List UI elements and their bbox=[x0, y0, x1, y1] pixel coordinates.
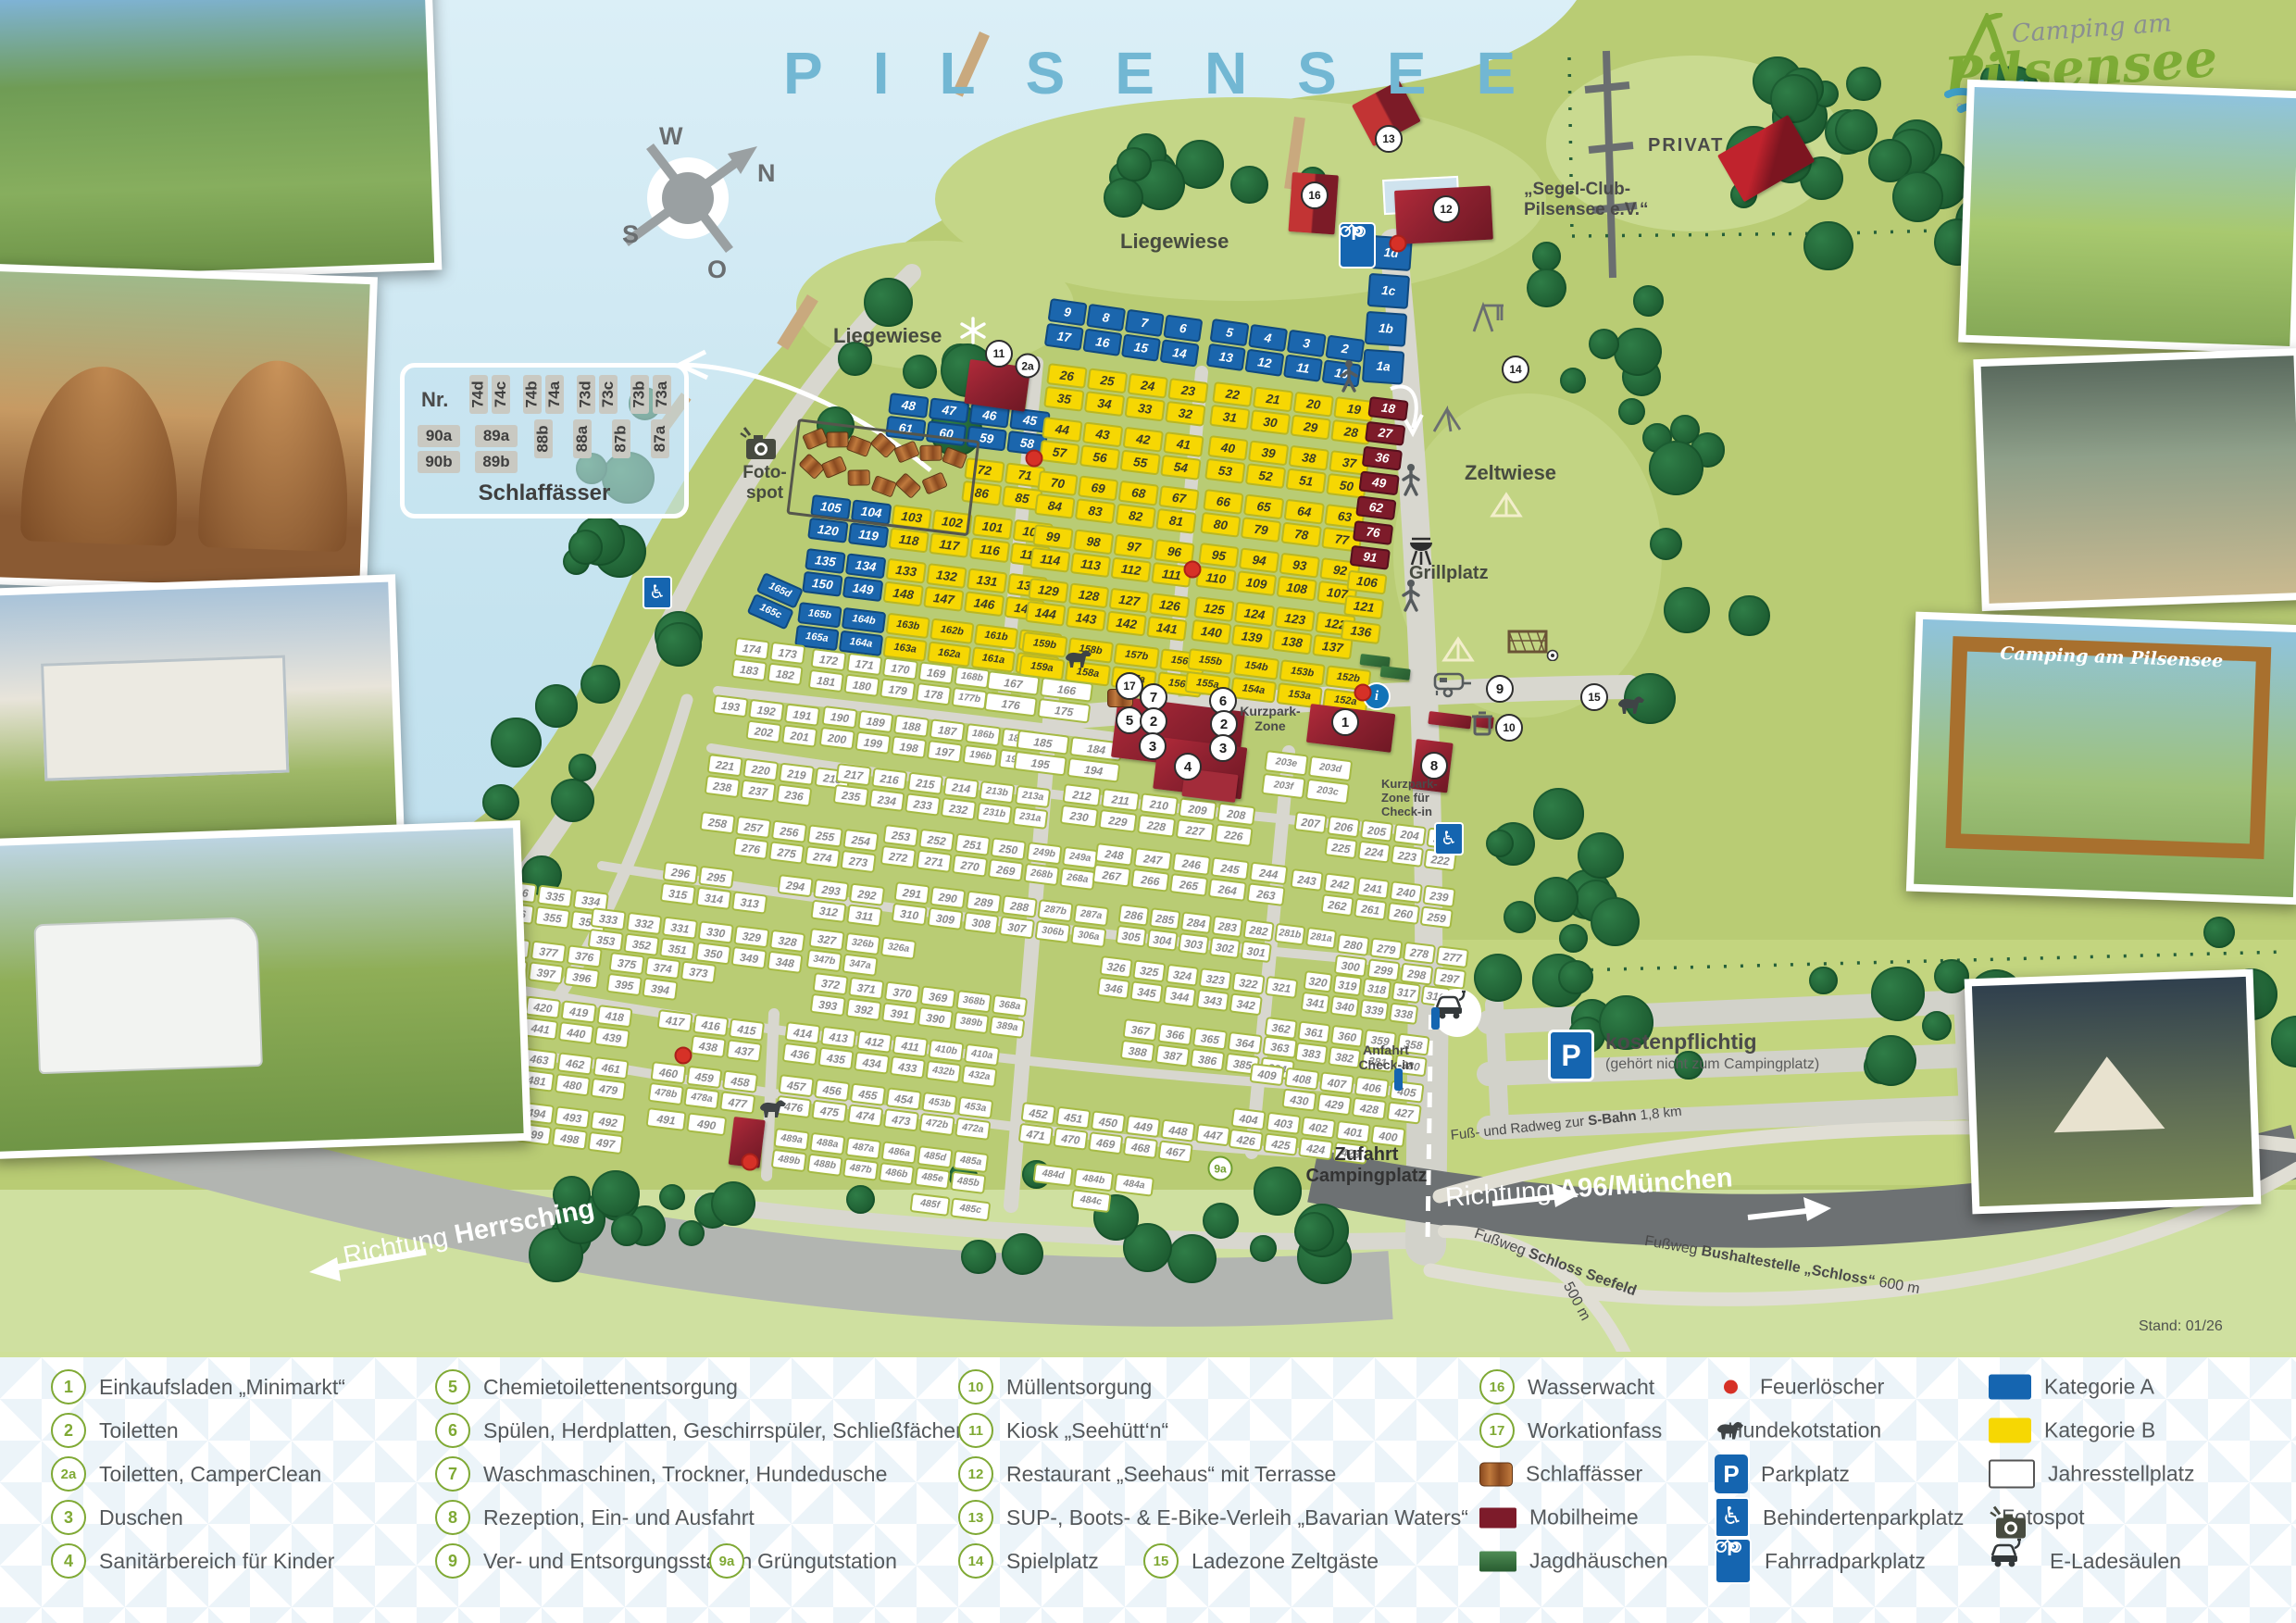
legend-item: E-Ladesäulen bbox=[1989, 1537, 2181, 1585]
plot-cell: 457 bbox=[778, 1074, 814, 1097]
map-marker-12: 12 bbox=[1432, 195, 1460, 223]
plot-cell: 306b bbox=[1034, 920, 1070, 943]
plot-cell: 473 bbox=[883, 1108, 919, 1131]
legend-text: Einkaufsladen „Minimarkt“ bbox=[99, 1375, 345, 1400]
plot-cell: 245 bbox=[1211, 856, 1250, 880]
plot-cell: 456 bbox=[814, 1079, 850, 1102]
plot-cell: 214 bbox=[943, 776, 980, 799]
schlaffaesser-nr: Nr. bbox=[421, 388, 448, 412]
plot-cell: 268b bbox=[1023, 863, 1059, 886]
plot-cell: 306a bbox=[1070, 925, 1106, 948]
plot-cell: 23 bbox=[1167, 378, 1208, 404]
disabled-icon: ♿ bbox=[1434, 822, 1464, 855]
plot-cell: 11 bbox=[1283, 354, 1323, 381]
plot-cell: 82 bbox=[1115, 504, 1155, 530]
plot-cell: 113 bbox=[1070, 552, 1111, 578]
plot-cell: 147 bbox=[923, 586, 964, 612]
plot-cell: 30 bbox=[1250, 409, 1291, 435]
schlaffaesser-plot-chip: 74a bbox=[545, 375, 564, 414]
plot-row: 76 bbox=[1353, 520, 1393, 545]
legend-text: Sanitärbereich für Kinder bbox=[99, 1549, 334, 1574]
plot-cell: 273 bbox=[840, 850, 876, 873]
tree bbox=[1527, 268, 1566, 307]
plot-cell: 141 bbox=[1146, 616, 1187, 642]
plot-cell: 248 bbox=[1094, 843, 1133, 867]
tree bbox=[1633, 285, 1664, 316]
plot-cell: 284 bbox=[1180, 911, 1212, 934]
ecar-icon bbox=[1433, 989, 1481, 1037]
schlaffaesser-plot-chip: 73a bbox=[653, 375, 671, 414]
legend-text: E-Ladesäulen bbox=[2050, 1549, 2181, 1574]
plot-cell: 311 bbox=[846, 904, 882, 927]
plot-cell: 472a bbox=[955, 1117, 991, 1141]
plot-cell: 386 bbox=[1190, 1048, 1225, 1071]
plot-cell: 397 bbox=[528, 961, 564, 984]
plot-cell: 64 bbox=[1284, 499, 1325, 525]
plot-cell: 374 bbox=[644, 956, 680, 980]
plot-cell: 133 bbox=[886, 558, 927, 584]
legend-item: Kategorie B bbox=[1989, 1418, 2155, 1443]
plot-cell: 42 bbox=[1123, 427, 1164, 453]
tree bbox=[659, 1184, 685, 1210]
plot-cell: 261 bbox=[1354, 898, 1387, 921]
fire-extinguisher-dot bbox=[675, 1047, 693, 1065]
tree bbox=[1770, 74, 1819, 123]
plot-cell: 5 bbox=[1210, 318, 1250, 346]
plot-cell: 128 bbox=[1068, 582, 1109, 608]
plot-cell: 36 bbox=[1362, 446, 1403, 471]
plot-cell: 428 bbox=[1352, 1097, 1387, 1120]
plot-cell: 435 bbox=[817, 1047, 854, 1070]
legend-icon-swA bbox=[1989, 1375, 2031, 1400]
plot-cell: 276 bbox=[732, 837, 768, 860]
plot-cell: 110 bbox=[1195, 566, 1236, 592]
plot-cell: 198 bbox=[891, 735, 927, 758]
plot-cell: 417 bbox=[656, 1009, 693, 1032]
plot-cell: 437 bbox=[726, 1039, 762, 1062]
plot-cell: 162b bbox=[930, 618, 974, 644]
plot-cell: 31 bbox=[1209, 405, 1250, 431]
tree bbox=[551, 779, 594, 822]
legend-item: 4Sanitärbereich für Kinder bbox=[51, 1543, 334, 1579]
plot-cell: 241 bbox=[1356, 877, 1390, 900]
photo-caravan-pitch bbox=[0, 820, 531, 1159]
plot-cell: 62 bbox=[1355, 495, 1396, 520]
map-marker-3: 3 bbox=[1209, 734, 1237, 762]
tree bbox=[535, 684, 579, 728]
plot-cell: 177b bbox=[951, 687, 987, 710]
plot-cell: 251 bbox=[955, 833, 991, 856]
plot-cell: 327 bbox=[808, 928, 844, 951]
plot-cell: 366 bbox=[1157, 1023, 1192, 1046]
tree bbox=[1504, 901, 1536, 933]
plot-cell: 426 bbox=[1229, 1129, 1264, 1152]
legend-item: Feuerlöscher bbox=[1715, 1375, 1884, 1400]
plot-cell: 27 bbox=[1365, 421, 1405, 446]
legend-icon-ecar bbox=[1989, 1537, 2037, 1585]
plot-cell: 314 bbox=[695, 887, 731, 910]
plot-cell: 439 bbox=[593, 1026, 630, 1049]
tree bbox=[1486, 830, 1514, 857]
plot-cell: 497 bbox=[587, 1131, 623, 1155]
map-label: „Segel-Club- Pilsensee e.V.“ bbox=[1524, 180, 1649, 220]
plot-cell: 368b bbox=[955, 990, 992, 1013]
sleeping-barrel bbox=[826, 431, 848, 447]
plot-cell: 20 bbox=[1293, 392, 1334, 418]
legend-item: ♿Behindertenparkplatz bbox=[1715, 1497, 1964, 1538]
fire-extinguisher-dot bbox=[1026, 450, 1043, 468]
plot-cell: 478b bbox=[648, 1082, 684, 1105]
plot-cell: 202 bbox=[745, 720, 781, 743]
plot-cell: 458 bbox=[722, 1070, 758, 1093]
plot-cell: 268a bbox=[1059, 868, 1095, 891]
plot-cell: 101 bbox=[972, 514, 1013, 540]
plot-cell: 448 bbox=[1160, 1119, 1195, 1142]
plot-cell: 427 bbox=[1387, 1101, 1422, 1124]
plot-cell: 32 bbox=[1165, 401, 1205, 427]
tree bbox=[711, 1181, 755, 1226]
plot-cell: 492 bbox=[590, 1110, 626, 1133]
tree bbox=[1533, 788, 1585, 840]
tree bbox=[1650, 528, 1682, 560]
plot-cell: 114 bbox=[1029, 547, 1070, 573]
sleeping-barrel bbox=[802, 427, 829, 450]
plot-cell: 3 bbox=[1287, 330, 1327, 357]
plot-cell: 326 bbox=[1099, 955, 1132, 979]
plot-cell: 281a bbox=[1305, 927, 1337, 950]
plot-cell: 200 bbox=[819, 727, 855, 750]
plot-cell: 4 bbox=[1248, 324, 1288, 352]
plot-cell: 488a bbox=[809, 1132, 845, 1155]
map-marker-10: 10 bbox=[1495, 714, 1523, 742]
legend-item: 9aGrüngutstation bbox=[709, 1543, 897, 1579]
plot-cell: 117 bbox=[929, 532, 969, 558]
plot-cell: 174 bbox=[733, 637, 769, 660]
plot-cell: 179 bbox=[880, 678, 916, 701]
schlaffaesser-plot-chip: 74d bbox=[469, 375, 488, 414]
plot-cell: 144 bbox=[1025, 601, 1066, 627]
plot-cell: 429 bbox=[1316, 1092, 1352, 1116]
plot-cell: 390 bbox=[917, 1006, 954, 1030]
plot-cell: 484d bbox=[1032, 1163, 1073, 1187]
legend-item: 11Kiosk „Seehütt‘n“ bbox=[958, 1413, 1168, 1448]
plot-cell: 25 bbox=[1087, 368, 1128, 393]
plot-cell: 396 bbox=[564, 966, 600, 989]
legend-icon-barrel bbox=[1479, 1462, 1513, 1486]
plot-cell: 403 bbox=[1266, 1112, 1301, 1135]
legend-item: 13SUP-, Boots- & E-Bike-Verleih „Bavaria… bbox=[958, 1500, 1468, 1535]
tree bbox=[1002, 1233, 1043, 1275]
schlaffaesser-plot-chip: 88a bbox=[573, 419, 592, 458]
plot-cell: 70 bbox=[1037, 470, 1078, 496]
plot-cell: 282 bbox=[1242, 919, 1274, 943]
map-marker-1: 1 bbox=[1331, 708, 1359, 736]
legend-icon-park: P bbox=[1715, 1454, 1748, 1493]
plot-cell: 391 bbox=[881, 1002, 917, 1025]
schlaffaesser-plot-chip: 73c bbox=[599, 375, 618, 414]
plot-cell: 270 bbox=[952, 854, 988, 877]
plot-cell: 365 bbox=[1192, 1027, 1228, 1050]
plot-cell: 181 bbox=[808, 669, 844, 693]
legend-badge-10: 10 bbox=[958, 1369, 993, 1405]
plot-cell: 364 bbox=[1228, 1031, 1263, 1055]
plot-cell: 301 bbox=[1241, 940, 1272, 963]
fire-extinguisher-dot bbox=[1390, 235, 1407, 253]
legend-text: Feuerlöscher bbox=[1760, 1375, 1884, 1400]
plot-cell: 467 bbox=[1158, 1140, 1193, 1163]
plot-cell: 460 bbox=[650, 1061, 686, 1084]
plot-cell: 389b bbox=[953, 1011, 989, 1034]
legend-badge-16: 16 bbox=[1479, 1369, 1515, 1405]
plot-cell: 292 bbox=[849, 883, 885, 906]
plot-cell: 341 bbox=[1301, 992, 1330, 1014]
plot-cell: 288 bbox=[1002, 894, 1038, 918]
tree bbox=[1803, 221, 1853, 270]
plot-cell: 135 bbox=[805, 548, 845, 574]
map-label: Zufahrt Campingplatz bbox=[1283, 1144, 1450, 1187]
legend-text: Toiletten bbox=[99, 1418, 179, 1443]
plot-cell: 313 bbox=[731, 891, 767, 914]
plot-cell: 129 bbox=[1028, 578, 1068, 604]
plot-cell: 489b bbox=[771, 1149, 807, 1172]
plot-cell: 173 bbox=[769, 642, 805, 665]
plot-cell: 362 bbox=[1264, 1017, 1297, 1040]
plot-cell: 498 bbox=[552, 1127, 588, 1150]
plot-cell: 438 bbox=[690, 1035, 726, 1058]
tree bbox=[1846, 67, 1880, 101]
schlaffaesser-plot-chip: 74c bbox=[492, 375, 510, 414]
plot-cell: 487b bbox=[842, 1157, 879, 1180]
schlaffaesser-caption: Schlaffässer bbox=[405, 481, 684, 506]
plot-cell: 124 bbox=[1234, 601, 1275, 627]
plot-cell: 95 bbox=[1198, 543, 1239, 568]
legend-text: Chemietoilettenentsorgung bbox=[483, 1375, 738, 1400]
plot-cell: 1c bbox=[1367, 273, 1410, 309]
plot-cell: 416 bbox=[693, 1014, 729, 1037]
legend-item: PFahrradparkplatz bbox=[1715, 1538, 1926, 1584]
plot-cell: 468 bbox=[1123, 1136, 1158, 1159]
plot-cell: 206 bbox=[1327, 815, 1360, 838]
plot-row: 106 bbox=[1346, 570, 1387, 595]
plot-cell: 370 bbox=[884, 981, 920, 1005]
legend-item: 17Workationfass bbox=[1479, 1413, 1662, 1448]
plot-cell: 140 bbox=[1191, 619, 1231, 645]
plot-cell: 81 bbox=[1155, 508, 1196, 534]
photo-lake-beach bbox=[1958, 80, 2296, 355]
plot-cell: 414 bbox=[784, 1021, 820, 1044]
map-label: PRIVAT bbox=[1648, 135, 1724, 156]
plot-cell: 413 bbox=[820, 1026, 856, 1049]
plot-cell: 215 bbox=[907, 772, 943, 795]
plot-cell: 39 bbox=[1248, 440, 1289, 466]
plot-cell: 309 bbox=[927, 907, 963, 930]
sleeping-barrel bbox=[919, 445, 942, 461]
legend-badge-14: 14 bbox=[958, 1543, 993, 1579]
plot-cell: 262 bbox=[1320, 893, 1354, 917]
tree bbox=[1871, 967, 1925, 1020]
plot-cell: 355 bbox=[534, 905, 570, 929]
plot-cell: 280 bbox=[1336, 933, 1369, 956]
legend-text: Schlaffässer bbox=[1526, 1462, 1642, 1487]
plot-cell: 308 bbox=[963, 911, 999, 934]
plot-cell: 239 bbox=[1422, 885, 1455, 908]
plot-cell: 287b bbox=[1037, 899, 1073, 922]
sleeping-barrel bbox=[848, 469, 870, 485]
plot-cell: 150 bbox=[802, 571, 842, 597]
tree bbox=[1618, 398, 1645, 425]
legend-item: 16Wasserwacht bbox=[1479, 1369, 1654, 1405]
plot-cell: 203e bbox=[1264, 750, 1308, 776]
plot-cell: 388 bbox=[1120, 1040, 1155, 1063]
legend-item: 2Toiletten bbox=[51, 1413, 179, 1448]
plot-cell: 410b bbox=[928, 1039, 964, 1062]
plot-cell: 112 bbox=[1110, 557, 1151, 583]
map-marker-11: 11 bbox=[985, 340, 1013, 368]
plot-cell: 211 bbox=[1101, 788, 1140, 812]
plot-cell: 320 bbox=[1303, 970, 1332, 993]
plot-cell: 290 bbox=[930, 886, 966, 909]
plot-cell: 168b bbox=[954, 666, 990, 689]
plot-cell: 161b bbox=[974, 623, 1018, 649]
plot-cell: 487a bbox=[845, 1137, 881, 1160]
plot-cell: 361 bbox=[1297, 1020, 1330, 1043]
plot-cell: 190 bbox=[821, 705, 857, 729]
plot-cell: 281b bbox=[1274, 923, 1305, 946]
map-label: Liegewiese bbox=[833, 324, 942, 347]
plot-cell: 254 bbox=[842, 829, 879, 852]
plot-row: 1c bbox=[1367, 273, 1410, 309]
plot-cell: 325 bbox=[1132, 959, 1166, 982]
plot-cell: 347a bbox=[842, 954, 878, 977]
plot-cell: 315 bbox=[660, 882, 696, 905]
plot-cell: 84 bbox=[1034, 493, 1075, 519]
legend-text: Jagdhäuschen bbox=[1529, 1549, 1668, 1574]
plot-cell: 291 bbox=[893, 881, 930, 905]
plot-cell: 252 bbox=[918, 829, 955, 852]
plot-cell: 418 bbox=[596, 1005, 632, 1028]
legend-text: Behindertenparkplatz bbox=[1763, 1505, 1964, 1530]
tree bbox=[1865, 1035, 1916, 1086]
map-label: Foto- spot bbox=[728, 463, 802, 504]
plot-cell: 51 bbox=[1285, 468, 1326, 494]
legend-text: Ladezone Zeltgäste bbox=[1192, 1549, 1379, 1574]
plot-cell: 371 bbox=[848, 977, 884, 1000]
photo-restaurant-terrace bbox=[1973, 348, 2296, 611]
plot-cell: 119 bbox=[848, 522, 889, 548]
map-marker-15: 15 bbox=[1580, 683, 1608, 711]
plot-cell: 116 bbox=[969, 537, 1010, 563]
sleeping-barrel bbox=[893, 441, 920, 464]
plot-cell: 65 bbox=[1243, 493, 1284, 519]
plot-cell: 283 bbox=[1212, 915, 1243, 938]
plot-cell: 193 bbox=[712, 694, 748, 718]
plot-cell: 352 bbox=[623, 933, 659, 956]
legend-badge-2a: 2a bbox=[51, 1456, 86, 1492]
plot-cell: 475 bbox=[811, 1100, 847, 1123]
plot-cell: 317 bbox=[1391, 981, 1421, 1004]
plot-cell: 209 bbox=[1179, 797, 1217, 821]
plot-cell: 368a bbox=[992, 994, 1028, 1017]
plot-cell: 451 bbox=[1055, 1106, 1091, 1130]
tree bbox=[1728, 595, 1769, 636]
tree bbox=[1614, 328, 1662, 376]
plot-cell: 478a bbox=[683, 1087, 719, 1110]
map-label: Stand: 01/26 bbox=[2139, 1318, 2223, 1335]
plot-cell: 249b bbox=[1026, 842, 1062, 865]
photo-tent-evening bbox=[1965, 969, 2262, 1215]
plot-cell: 191 bbox=[784, 704, 820, 727]
plot-cell: 121 bbox=[1343, 594, 1384, 619]
sleeping-barrel bbox=[871, 475, 897, 497]
plot-cell: 26 bbox=[1046, 363, 1087, 389]
plot-cell: 237 bbox=[740, 780, 776, 803]
plot-cell: 312 bbox=[810, 900, 846, 923]
plot-row: 36 bbox=[1362, 446, 1403, 471]
legend-badge-13: 13 bbox=[958, 1500, 993, 1535]
plot-cell: 440 bbox=[558, 1021, 594, 1044]
legend-text: Fahrradparkplatz bbox=[1765, 1549, 1926, 1574]
plot-cell: 480 bbox=[555, 1073, 591, 1096]
plot-cell: 349 bbox=[730, 946, 767, 969]
plot-cell: 196b bbox=[962, 744, 998, 768]
plot-cell: 16 bbox=[1082, 329, 1122, 356]
plot-cell: 367 bbox=[1122, 1018, 1157, 1042]
plot-cell: 12 bbox=[1244, 349, 1284, 377]
plot-cell: 164b bbox=[842, 607, 886, 633]
plot-cell: 207 bbox=[1293, 811, 1327, 834]
plot-cell: 389a bbox=[989, 1016, 1025, 1039]
plot-cell: 305 bbox=[1116, 925, 1147, 948]
map-marker-9: 9 bbox=[1486, 675, 1514, 703]
plot-cell: 489a bbox=[773, 1128, 809, 1151]
tree bbox=[1104, 178, 1142, 217]
legend-item: PParkplatz bbox=[1715, 1454, 1850, 1493]
plot-cell: 108 bbox=[1276, 576, 1316, 602]
plot-cell: 449 bbox=[1126, 1115, 1161, 1138]
plot-cell: 231a bbox=[1012, 806, 1048, 830]
plot-cell: 157b bbox=[1113, 643, 1159, 669]
sleeping-barrel bbox=[921, 471, 948, 494]
plot-cell: 180 bbox=[843, 674, 880, 697]
plot-cell: 436 bbox=[782, 1042, 818, 1066]
plot-cell: 118 bbox=[888, 528, 929, 554]
plot-row: 49 bbox=[1358, 470, 1399, 495]
plot-cell: 40 bbox=[1207, 435, 1248, 461]
plot-cell: 201 bbox=[781, 724, 817, 747]
plot-cell: 295 bbox=[698, 866, 734, 889]
plot-cell: 55 bbox=[1119, 450, 1160, 476]
plot-cell: 24 bbox=[1128, 373, 1168, 399]
plot-cell: 203d bbox=[1308, 755, 1353, 781]
plot-cell: 253 bbox=[882, 824, 918, 847]
legend-item: Kategorie A bbox=[1989, 1375, 2154, 1400]
legend-badge-11: 11 bbox=[958, 1413, 993, 1448]
plot-cell: 331 bbox=[662, 917, 698, 940]
plot-cell: 21 bbox=[1253, 386, 1293, 412]
plot-cell: 462 bbox=[557, 1052, 593, 1075]
photo-aerial-campsite bbox=[0, 0, 442, 285]
plot-cell: 434 bbox=[854, 1051, 890, 1074]
plot-cell: 484b bbox=[1073, 1167, 1114, 1192]
tree bbox=[2203, 917, 2235, 948]
plot-cell: 342 bbox=[1229, 993, 1263, 1016]
legend-item: 5Chemietoilettenentsorgung bbox=[435, 1369, 738, 1405]
map-marker-13: 13 bbox=[1375, 125, 1403, 153]
plot-cell: 163b bbox=[885, 613, 930, 639]
plot-cell: 454 bbox=[886, 1087, 922, 1110]
map-label: Kurzpark- Zone bbox=[1231, 704, 1309, 733]
plot-cell: 79 bbox=[1241, 517, 1281, 543]
